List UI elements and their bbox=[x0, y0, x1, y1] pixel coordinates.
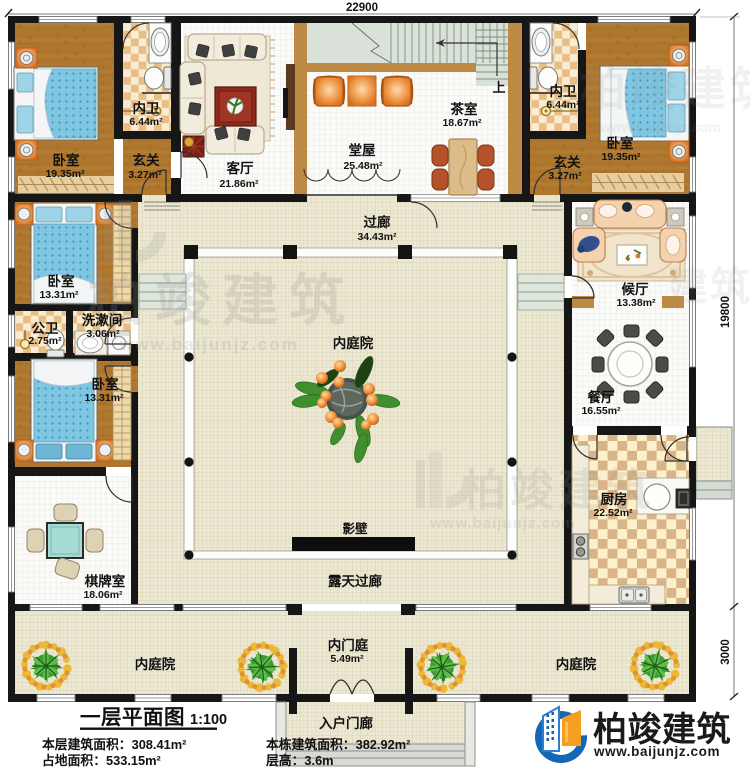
svg-text:5.49m²: 5.49m² bbox=[330, 653, 364, 665]
svg-text:本栋建筑面积：382.92m²: 本栋建筑面积：382.92m² bbox=[266, 737, 410, 752]
svg-text:3000: 3000 bbox=[720, 639, 732, 665]
svg-text:3.27m²: 3.27m² bbox=[128, 169, 162, 181]
svg-text:1:100: 1:100 bbox=[190, 712, 227, 728]
svg-text:www.baijunjz.com: www.baijunjz.com bbox=[599, 119, 721, 135]
svg-text:卧室: 卧室 bbox=[48, 273, 75, 289]
svg-text:候厅: 候厅 bbox=[622, 281, 650, 297]
svg-text:占地面积：533.15m²: 占地面积：533.15m² bbox=[42, 753, 161, 768]
svg-text:内庭院: 内庭院 bbox=[333, 335, 374, 351]
svg-text:16.55m²: 16.55m² bbox=[581, 405, 621, 417]
svg-text:6.44m²: 6.44m² bbox=[129, 116, 163, 128]
svg-text:内卫: 内卫 bbox=[133, 100, 160, 116]
svg-text:玄关: 玄关 bbox=[554, 154, 582, 170]
svg-text:www.baijunjz.com: www.baijunjz.com bbox=[429, 515, 575, 532]
svg-text:洗漱间: 洗漱间 bbox=[82, 312, 123, 328]
svg-text:19.35m²: 19.35m² bbox=[45, 168, 85, 180]
svg-text:上: 上 bbox=[492, 80, 505, 95]
svg-text:层高：3.6m: 层高：3.6m bbox=[266, 753, 334, 768]
svg-text:18.06m²: 18.06m² bbox=[83, 589, 123, 601]
svg-text:柏竣建筑: 柏竣建筑 bbox=[88, 269, 356, 332]
svg-text:www.baijunjz.com: www.baijunjz.com bbox=[119, 335, 299, 354]
svg-text:建筑: 建筑 bbox=[668, 265, 750, 309]
svg-text:厨房: 厨房 bbox=[601, 491, 628, 507]
svg-text:21.86m²: 21.86m² bbox=[219, 178, 259, 190]
svg-text:2.75m²: 2.75m² bbox=[28, 335, 62, 347]
svg-text:卧室: 卧室 bbox=[53, 152, 80, 168]
svg-text:13.31m²: 13.31m² bbox=[84, 392, 124, 404]
svg-text:18.67m²: 18.67m² bbox=[442, 117, 482, 129]
svg-text:内卫: 内卫 bbox=[550, 83, 578, 99]
svg-text:入户门廊: 入户门廊 bbox=[319, 715, 373, 731]
svg-text:内庭院: 内庭院 bbox=[135, 656, 176, 672]
svg-text:餐厅: 餐厅 bbox=[587, 389, 616, 405]
svg-text:25.48m²: 25.48m² bbox=[343, 160, 383, 172]
svg-text:www.baijunjz.com: www.baijunjz.com bbox=[593, 744, 720, 759]
svg-text:19.35m²: 19.35m² bbox=[601, 151, 641, 163]
svg-text:13.38m²: 13.38m² bbox=[616, 297, 656, 309]
svg-text:堂屋: 堂屋 bbox=[349, 142, 376, 158]
svg-text:露天过廊: 露天过廊 bbox=[328, 573, 382, 589]
svg-text:卧室: 卧室 bbox=[92, 376, 119, 392]
svg-text:本层建筑面积：308.41m²: 本层建筑面积：308.41m² bbox=[42, 737, 186, 752]
svg-text:影壁: 影壁 bbox=[342, 521, 368, 536]
svg-text:内门庭: 内门庭 bbox=[328, 637, 369, 653]
svg-text:玄关: 玄关 bbox=[133, 152, 160, 168]
svg-text:内庭院: 内庭院 bbox=[556, 656, 597, 672]
svg-text:3.06m²: 3.06m² bbox=[86, 328, 120, 340]
svg-text:34.43m²: 34.43m² bbox=[357, 231, 397, 243]
svg-text:公卫: 公卫 bbox=[32, 321, 59, 336]
svg-text:22900: 22900 bbox=[346, 2, 378, 14]
svg-text:3.27m²: 3.27m² bbox=[548, 170, 582, 182]
svg-text:19800: 19800 bbox=[720, 296, 732, 328]
svg-text:22.52m²: 22.52m² bbox=[593, 507, 633, 519]
svg-text:过廊: 过廊 bbox=[364, 214, 391, 230]
svg-text:茶室: 茶室 bbox=[450, 101, 478, 117]
svg-text:柏竣建筑: 柏竣建筑 bbox=[580, 63, 750, 115]
svg-text:棋牌室: 棋牌室 bbox=[85, 573, 126, 589]
svg-text:6.44m²: 6.44m² bbox=[546, 99, 580, 111]
svg-text:客厅: 客厅 bbox=[226, 160, 254, 176]
svg-text:卧室: 卧室 bbox=[607, 135, 635, 151]
svg-text:13.31m²: 13.31m² bbox=[39, 289, 79, 301]
svg-text:一层平面图: 一层平面图 bbox=[80, 706, 185, 729]
